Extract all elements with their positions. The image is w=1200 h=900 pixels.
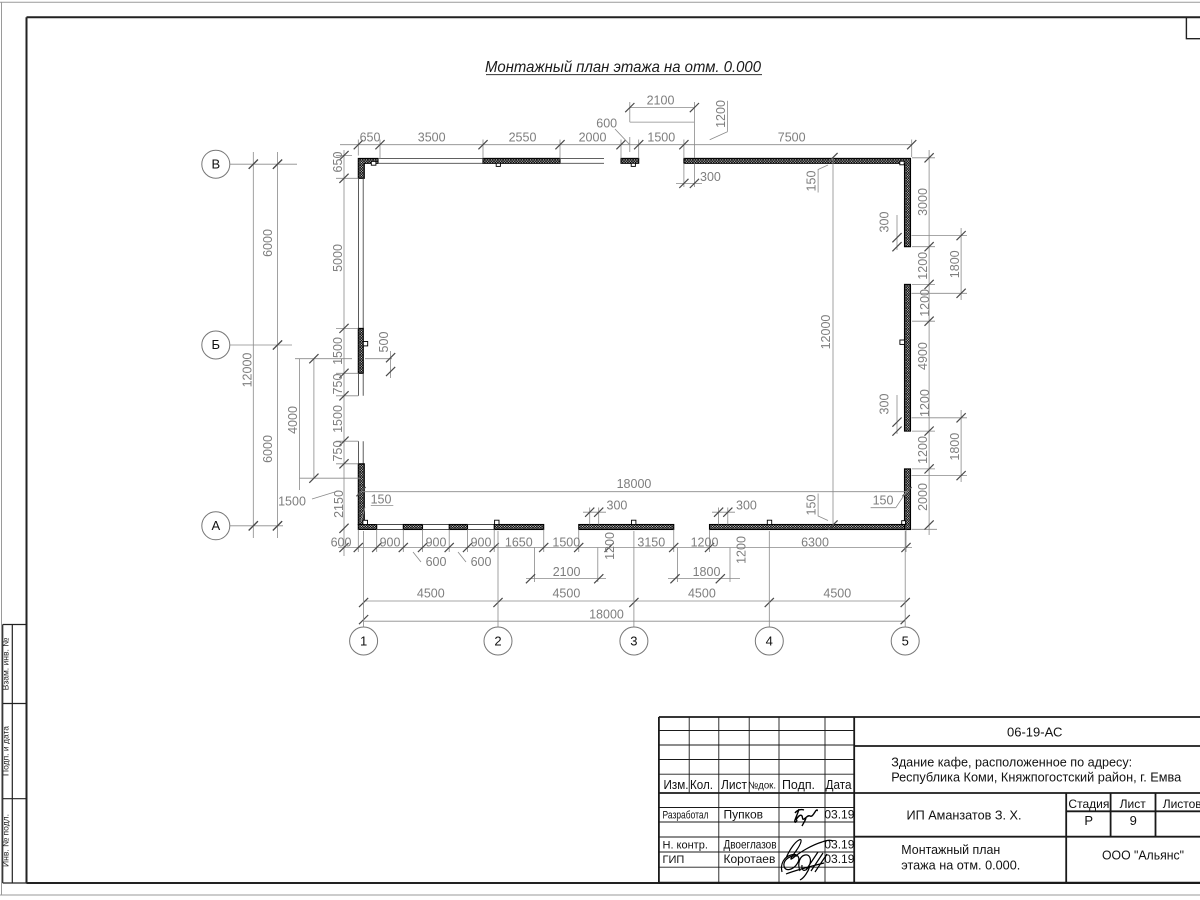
- svg-text:3000: 3000: [916, 188, 930, 216]
- svg-text:300: 300: [607, 499, 628, 513]
- svg-text:Двоеглазов: Двоеглазов: [724, 837, 777, 851]
- svg-text:ООО "Альянс": ООО "Альянс": [1102, 848, 1184, 863]
- svg-text:300: 300: [878, 394, 892, 415]
- svg-text:1800: 1800: [693, 565, 721, 579]
- svg-text:150: 150: [873, 494, 894, 508]
- svg-text:600: 600: [471, 555, 492, 569]
- svg-text:150: 150: [805, 495, 819, 516]
- svg-text:600: 600: [331, 535, 352, 549]
- svg-text:1200: 1200: [916, 252, 930, 280]
- svg-text:12000: 12000: [241, 353, 255, 388]
- svg-text:Разработал: Разработал: [663, 809, 709, 821]
- svg-text:4000: 4000: [286, 406, 300, 434]
- svg-text:12000: 12000: [819, 315, 833, 350]
- svg-text:2000: 2000: [916, 483, 930, 511]
- svg-text:750: 750: [331, 374, 345, 395]
- svg-text:№док.: №док.: [748, 781, 776, 792]
- svg-text:03.19: 03.19: [824, 852, 854, 866]
- svg-text:1: 1: [360, 634, 367, 649]
- svg-text:1500: 1500: [331, 337, 345, 365]
- svg-text:Здание кафе, расположенное по: Здание кафе, расположенное по адресу:: [891, 755, 1132, 770]
- svg-text:2100: 2100: [647, 93, 675, 107]
- svg-text:600: 600: [596, 116, 617, 130]
- svg-text:4900: 4900: [916, 342, 930, 370]
- svg-text:Стадия: Стадия: [1068, 797, 1109, 811]
- svg-text:03.19: 03.19: [824, 837, 854, 851]
- svg-text:650: 650: [331, 152, 345, 173]
- svg-text:4500: 4500: [688, 586, 716, 600]
- svg-text:1800: 1800: [948, 433, 962, 461]
- svg-text:1200: 1200: [603, 532, 617, 560]
- svg-text:4500: 4500: [552, 586, 580, 600]
- svg-text:900: 900: [426, 535, 447, 549]
- svg-text:2: 2: [494, 634, 501, 649]
- svg-text:18000: 18000: [617, 477, 652, 491]
- svg-text:Кол.: Кол.: [690, 778, 713, 792]
- svg-text:Монтажный план: Монтажный план: [901, 842, 1000, 857]
- svg-text:ГИП: ГИП: [663, 854, 685, 866]
- svg-text:Коротаев: Коротаев: [724, 852, 776, 866]
- svg-text:Листов: Листов: [1163, 797, 1200, 811]
- svg-text:4500: 4500: [417, 586, 445, 600]
- svg-text:Подп. и дата: Подп. и дата: [1, 726, 11, 776]
- svg-text:2150: 2150: [332, 490, 346, 518]
- svg-text:Подп.: Подп.: [782, 778, 815, 792]
- svg-text:В: В: [211, 156, 220, 171]
- svg-text:1200: 1200: [916, 436, 930, 464]
- svg-text:300: 300: [878, 212, 892, 233]
- svg-text:3150: 3150: [637, 535, 665, 549]
- svg-text:900: 900: [380, 535, 401, 549]
- svg-text:1500: 1500: [552, 535, 580, 549]
- svg-text:Б: Б: [212, 337, 221, 352]
- svg-text:1500: 1500: [331, 405, 345, 433]
- svg-text:3500: 3500: [418, 131, 446, 145]
- svg-text:6000: 6000: [261, 229, 275, 257]
- svg-text:2550: 2550: [509, 131, 537, 145]
- svg-text:150: 150: [371, 493, 392, 507]
- svg-text:7500: 7500: [778, 131, 806, 145]
- svg-text:4500: 4500: [823, 586, 851, 600]
- svg-text:2100: 2100: [553, 565, 581, 579]
- svg-text:5: 5: [902, 634, 909, 649]
- svg-text:18000: 18000: [589, 608, 624, 622]
- svg-text:300: 300: [700, 170, 721, 184]
- svg-text:ИП Аманзатов З. Х.: ИП Аманзатов З. Х.: [907, 807, 1022, 822]
- svg-text:600: 600: [426, 555, 447, 569]
- svg-text:этажа на отм. 0.000.: этажа на отм. 0.000.: [901, 858, 1020, 873]
- svg-text:4: 4: [766, 634, 773, 649]
- svg-text:1500: 1500: [278, 494, 306, 508]
- svg-text:300: 300: [736, 499, 757, 513]
- svg-text:Дата: Дата: [826, 778, 852, 792]
- svg-text:Инв. № подл.: Инв. № подл.: [1, 814, 11, 867]
- svg-text:650: 650: [360, 131, 381, 145]
- svg-text:Пупков: Пупков: [724, 807, 764, 821]
- svg-text:900: 900: [471, 535, 492, 549]
- svg-text:1200: 1200: [735, 536, 749, 564]
- svg-text:1200: 1200: [691, 535, 719, 549]
- svg-text:3: 3: [630, 634, 637, 649]
- svg-text:А: А: [211, 518, 220, 533]
- svg-text:1200: 1200: [918, 389, 932, 417]
- svg-text:Лист: Лист: [1120, 797, 1147, 811]
- svg-text:1200: 1200: [714, 100, 728, 128]
- svg-text:6000: 6000: [261, 435, 275, 463]
- svg-text:Р: Р: [1084, 813, 1093, 828]
- svg-text:Изм.: Изм.: [664, 778, 689, 792]
- svg-text:750: 750: [331, 441, 345, 462]
- svg-text:Н. контр.: Н. контр.: [663, 839, 708, 851]
- svg-text:Взам. инв. №: Взам. инв. №: [1, 638, 11, 691]
- svg-text:5000: 5000: [331, 244, 345, 272]
- svg-text:2000: 2000: [579, 131, 607, 145]
- svg-text:03.19: 03.19: [824, 807, 854, 821]
- svg-text:150: 150: [805, 171, 819, 192]
- svg-text:500: 500: [377, 332, 391, 353]
- svg-text:1500: 1500: [647, 131, 675, 145]
- svg-text:6300: 6300: [801, 535, 829, 549]
- svg-text:Лист: Лист: [721, 778, 747, 792]
- svg-text:Республика Коми, Княжпогостски: Республика Коми, Княжпогостский район, г…: [891, 770, 1182, 785]
- svg-text:06-19-АС: 06-19-АС: [1007, 725, 1062, 740]
- svg-text:1650: 1650: [505, 535, 533, 549]
- svg-text:9: 9: [1130, 813, 1137, 828]
- svg-text:Монтажный план этажа на отм. 0: Монтажный план этажа на отм. 0.000: [485, 59, 761, 76]
- svg-text:1800: 1800: [948, 250, 962, 278]
